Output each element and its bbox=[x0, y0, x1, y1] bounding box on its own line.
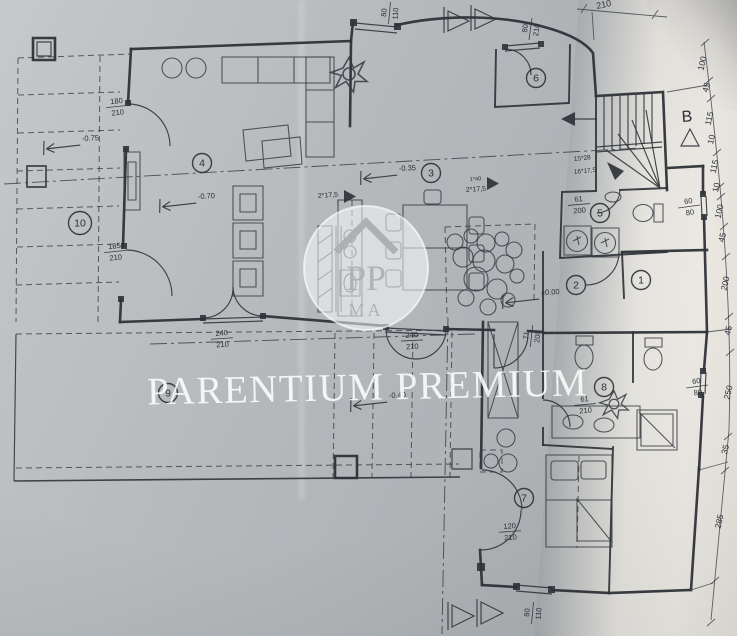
room-number: 6 bbox=[533, 73, 539, 85]
annotation-text: B bbox=[681, 108, 693, 126]
svg-text:180: 180 bbox=[110, 96, 123, 106]
opening-size-label: 80210 bbox=[519, 17, 542, 42]
svg-text:80: 80 bbox=[693, 387, 703, 397]
svg-text:210: 210 bbox=[216, 340, 229, 350]
room-badge-5: 5 bbox=[591, 204, 610, 223]
svg-text:210: 210 bbox=[531, 23, 542, 37]
dimension-value: 10 bbox=[710, 181, 722, 193]
room-number: 10 bbox=[74, 218, 86, 230]
room-badge-4: 4 bbox=[193, 154, 212, 173]
svg-text:60: 60 bbox=[692, 376, 702, 386]
dimension-lines bbox=[577, 4, 734, 626]
svg-text:-0.35: -0.35 bbox=[399, 163, 417, 173]
misc-annotations: 210B15*2816*17,52*17,51*402*17,5 bbox=[318, 0, 693, 200]
opening-size-label: 240210 bbox=[210, 328, 233, 350]
floor-plan-drawing: 12345678910 1802101852108011080210240210… bbox=[0, 0, 737, 636]
dimension-value: 45 bbox=[700, 81, 712, 93]
annotation-text: 2*17,5 bbox=[466, 186, 487, 194]
room-badge-1: 1 bbox=[632, 271, 651, 290]
dimension-chain-labels: 100451151011510100452004525035285 bbox=[696, 55, 735, 529]
dimension-value: 45 bbox=[722, 324, 734, 336]
dimension-value: 100 bbox=[713, 203, 726, 219]
svg-text:71: 71 bbox=[521, 331, 531, 340]
dimension-value: 45 bbox=[716, 231, 728, 243]
svg-text:80: 80 bbox=[685, 207, 695, 217]
svg-text:80: 80 bbox=[522, 608, 532, 617]
svg-text:80: 80 bbox=[520, 24, 530, 34]
room-number: 3 bbox=[428, 168, 434, 180]
annotation-text: 210 bbox=[595, 0, 612, 11]
svg-text:240: 240 bbox=[215, 328, 228, 338]
svg-text:200: 200 bbox=[532, 330, 542, 343]
room-badge-2: 2 bbox=[567, 276, 586, 295]
room-badge-7: 7 bbox=[515, 489, 534, 508]
windows bbox=[203, 23, 707, 594]
svg-text:-0.75: -0.75 bbox=[82, 133, 100, 143]
room-number: 1 bbox=[638, 275, 644, 287]
svg-text:-0.70: -0.70 bbox=[198, 191, 216, 201]
opening-size-label: 71200 bbox=[520, 324, 543, 348]
watermark-monogram: PP bbox=[346, 258, 386, 298]
svg-text:60: 60 bbox=[684, 196, 694, 206]
svg-text:110: 110 bbox=[390, 7, 400, 20]
annotation-text: 2*17,5 bbox=[318, 192, 339, 200]
watermark-monogram-sub: MA bbox=[348, 300, 383, 320]
dimension-value: 35 bbox=[719, 443, 731, 455]
svg-text:±0.00: ±0.00 bbox=[541, 287, 560, 297]
svg-text:110: 110 bbox=[533, 607, 543, 620]
pergola-dashed-lines bbox=[16, 54, 579, 548]
svg-text:61: 61 bbox=[574, 194, 583, 204]
room-badge-10: 10 bbox=[69, 212, 92, 235]
level-marker: ±0.00 bbox=[502, 287, 561, 309]
svg-text:200: 200 bbox=[573, 205, 586, 215]
dimension-value: 285 bbox=[713, 513, 726, 529]
annotation-text: 1*40 bbox=[470, 176, 482, 183]
opening-size-label: 80110 bbox=[379, 1, 401, 25]
room-number: 4 bbox=[199, 158, 205, 170]
svg-text:210: 210 bbox=[111, 107, 124, 117]
opening-size-label: 80110 bbox=[522, 601, 544, 625]
room-badge-3: 3 bbox=[422, 164, 441, 183]
annotation-text: 15*28 bbox=[573, 154, 591, 163]
svg-text:210: 210 bbox=[406, 342, 419, 352]
dimension-value: 250 bbox=[722, 384, 735, 400]
svg-text:120: 120 bbox=[503, 521, 516, 531]
room-number: 2 bbox=[573, 280, 579, 292]
svg-text:240: 240 bbox=[405, 330, 418, 340]
level-marker: -0.75 bbox=[43, 133, 100, 155]
room-badge-6: 6 bbox=[527, 69, 546, 88]
annotation-text: 16*17,5 bbox=[573, 167, 596, 176]
svg-text:210: 210 bbox=[579, 405, 592, 415]
svg-text:80: 80 bbox=[379, 8, 389, 17]
opening-size-label: 180210 bbox=[105, 95, 129, 118]
level-marker: -0.35 bbox=[360, 163, 417, 185]
svg-text:210: 210 bbox=[504, 533, 517, 543]
dimension-value: 200 bbox=[719, 275, 732, 291]
opening-size-label: 6080 bbox=[677, 195, 702, 218]
opening-size-label: 61200 bbox=[567, 194, 591, 216]
room-number: 7 bbox=[521, 493, 527, 505]
level-marker: -0.70 bbox=[159, 191, 216, 213]
svg-text:210: 210 bbox=[109, 252, 122, 262]
svg-text:185: 185 bbox=[108, 241, 121, 251]
room-number: 5 bbox=[597, 208, 603, 220]
floor-plan-photo: 12345678910 1802101852108011080210240210… bbox=[0, 0, 737, 636]
watermark-logo: PP MA bbox=[304, 206, 428, 330]
dimension-value: 100 bbox=[696, 55, 709, 71]
